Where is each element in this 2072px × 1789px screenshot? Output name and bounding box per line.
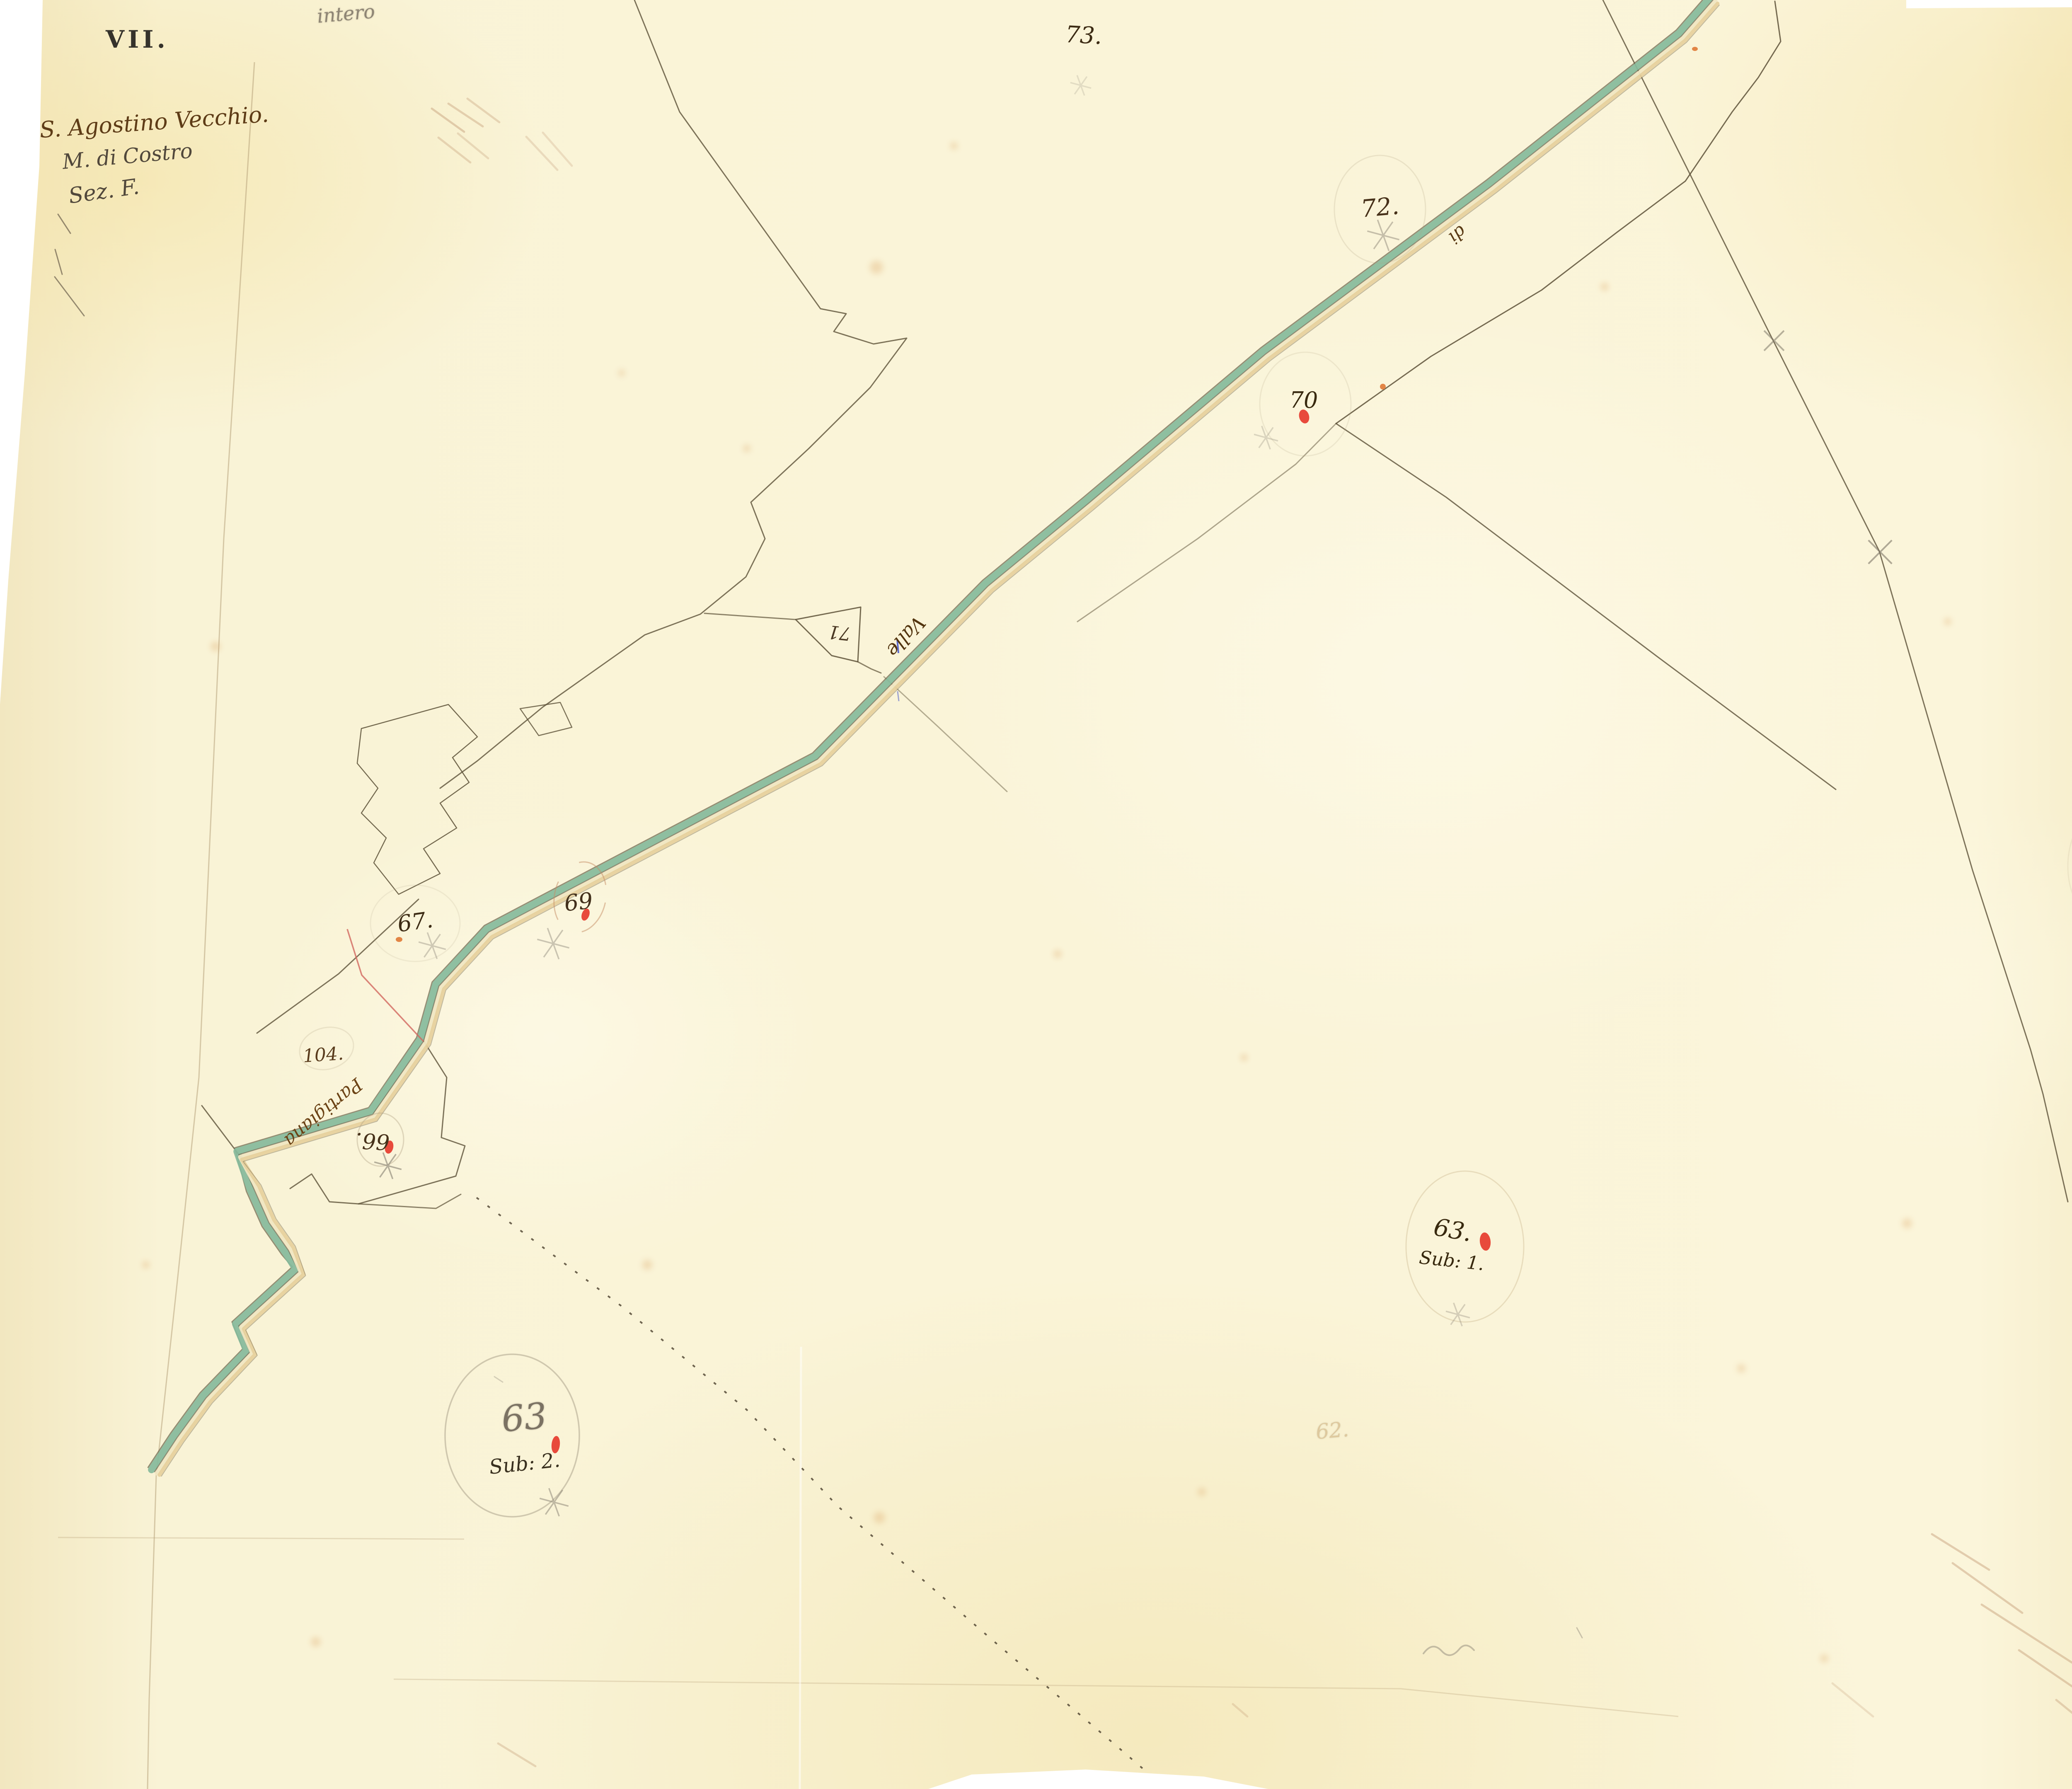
parcel-104: 104. [303,1045,344,1066]
watercourse-name-partigiana: Partigiana [281,1075,366,1150]
sheet-number: VII. [106,27,169,51]
parcel-67: 67. [396,908,435,935]
parcel-63-sub1: Sub: 1. [1418,1249,1485,1273]
sheet-title: S. Agostino Vecchio. [39,103,269,142]
road-name-di: di [1445,223,1469,247]
parcel-70: 70 [1290,389,1318,412]
parcel-72: 72. [1360,194,1400,221]
sheet-annotation-line-1: M. di Costro [61,140,193,172]
parcel-71: 71 [827,622,852,643]
sheet-annotation-line-2: Sez. F. [67,176,140,207]
parcel-63: 63. [1432,1215,1474,1245]
road-name-valle: Valle [883,613,929,661]
map-labels: VII. S. Agostino Vecchio. M. di Costro S… [0,0,2072,1789]
pencil-note-intero: intero [316,2,375,26]
parcel-69: 69 [563,890,594,915]
cadastral-map-sheet: VII. S. Agostino Vecchio. M. di Costro S… [0,0,2072,1789]
pencil-62-faint: 62. [1315,1419,1350,1443]
parcel-73: 73. [1065,23,1103,48]
parcel-63-sub2: Sub: 2. [488,1450,561,1477]
parcel-66: 66. [355,1129,390,1152]
parcel-63-sub2-number: 63 [500,1398,549,1437]
